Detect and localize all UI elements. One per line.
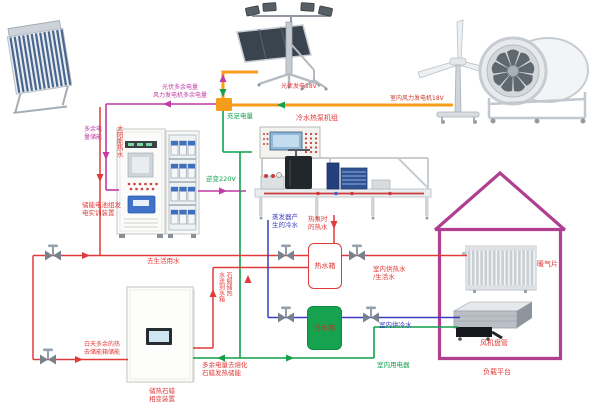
label-indoor-wind: 室内风力发电机18V <box>390 95 444 103</box>
cold-water-tank-label: 冷水箱 <box>314 323 335 333</box>
wind-tunnel-fan <box>480 38 588 124</box>
label-sufficient-power: 充足电量 <box>227 112 253 120</box>
gate-valve-icon <box>363 307 379 323</box>
label-pv-wind-surplus: 光伏多余电量 风力发电机多余电量 <box>150 84 210 99</box>
cold-water-tank: 冷水箱 <box>307 306 342 350</box>
pv-tracker <box>237 3 333 91</box>
battery-cabinet-left <box>117 129 165 238</box>
radiator <box>462 246 536 293</box>
label-heat-pump-hot: 热泵时 的热水 <box>308 215 328 231</box>
flow-arrow-icon <box>75 356 83 363</box>
label-heat-pump-unit: 冷水热泵机组 <box>296 114 338 123</box>
lamp-icon <box>245 3 332 17</box>
gate-valve-icon <box>278 307 294 323</box>
gate-valve-icon <box>40 349 56 365</box>
flow-arrow-icon <box>163 101 171 108</box>
blue-pipes <box>268 220 460 318</box>
flow-arrow-icon <box>220 74 227 82</box>
label-pv-generation: 光伏发电18V <box>281 83 317 91</box>
paraffin-cabinet <box>127 287 195 382</box>
label-day-surplus: 白天多余的热 去储能箱储能 <box>84 341 120 356</box>
flow-arrow-icon <box>103 152 110 160</box>
label-paraffin-to-tank: 石蜡储热 水送到水箱 <box>217 272 232 302</box>
label-load-platform: 负载平台 <box>483 368 511 377</box>
flow-arrow-icon <box>286 355 294 362</box>
hot-water-tank-label: 热水箱 <box>315 261 336 271</box>
gate-valve-icon <box>278 245 294 261</box>
label-indoor-cold: 室内供冷水 <box>379 321 412 329</box>
label-to-domestic: 去生活用水 <box>147 257 180 265</box>
flow-arrow-icon <box>82 252 90 259</box>
label-solar-hot-water: 太阳能热水 <box>115 125 123 158</box>
label-fan-coil: 风机盘管 <box>480 339 508 348</box>
flow-arrow-icon <box>210 289 217 297</box>
gate-valve-icon <box>45 245 61 261</box>
label-battery-trainer: 储能电池组发 电实训装置 <box>82 201 121 217</box>
label-indoor-hot: 室内供热水 /生活水 <box>373 265 406 281</box>
flow-arrow-icon <box>219 188 227 195</box>
label-evaporator-cold: 蒸发器产 生的冷水 <box>272 213 298 229</box>
label-paraffin-device: 储热石蜡 相变装置 <box>140 387 184 403</box>
flow-arrow-icon <box>331 221 338 229</box>
fan-coil-unit <box>454 302 532 341</box>
hot-water-tank: 热水箱 <box>308 243 342 289</box>
schematic-canvas: 热水箱 冷水箱 光伏多余电量 风力发电机多余电量 光伏发电18V 室内风力发电机… <box>0 0 600 419</box>
label-surplus-melt-paraffin: 多余电量去熔化 石蜡发热储能 <box>202 361 248 377</box>
gate-valve-icon <box>349 245 365 261</box>
junction-box <box>216 98 232 111</box>
label-inverter: 逆变220V <box>206 175 236 183</box>
flow-arrow-icon <box>220 89 227 97</box>
label-surplus-storage: 多余电 量储能 <box>84 126 102 141</box>
flow-arrow-icon <box>245 275 252 283</box>
flow-arrow-icon <box>97 174 104 182</box>
solar-collector <box>0 20 75 115</box>
flow-arrow-icon <box>277 102 285 109</box>
label-radiator: 暖气片 <box>537 260 558 269</box>
label-indoor-appliances: 室内用电器 <box>377 361 410 369</box>
battery-cabinet-right <box>166 131 199 238</box>
heat-pump-bench <box>255 127 431 220</box>
